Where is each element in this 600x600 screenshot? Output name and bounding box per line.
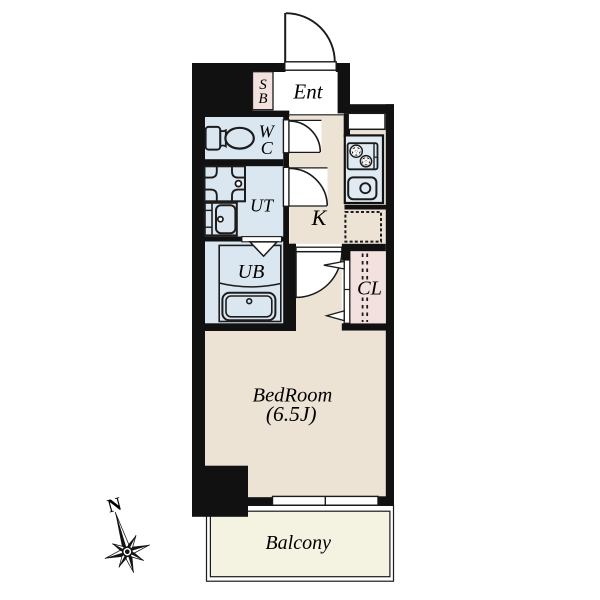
svg-text:C: C [261,138,274,158]
svg-text:UB: UB [238,261,265,283]
svg-text:Balcony: Balcony [265,532,331,554]
svg-text:K: K [311,205,328,230]
svg-text:Ent: Ent [292,80,323,104]
svg-text:UT: UT [250,196,275,216]
svg-text:CL: CL [357,278,382,300]
svg-text:B: B [258,91,267,107]
svg-text:(6.5J): (6.5J) [266,402,317,426]
